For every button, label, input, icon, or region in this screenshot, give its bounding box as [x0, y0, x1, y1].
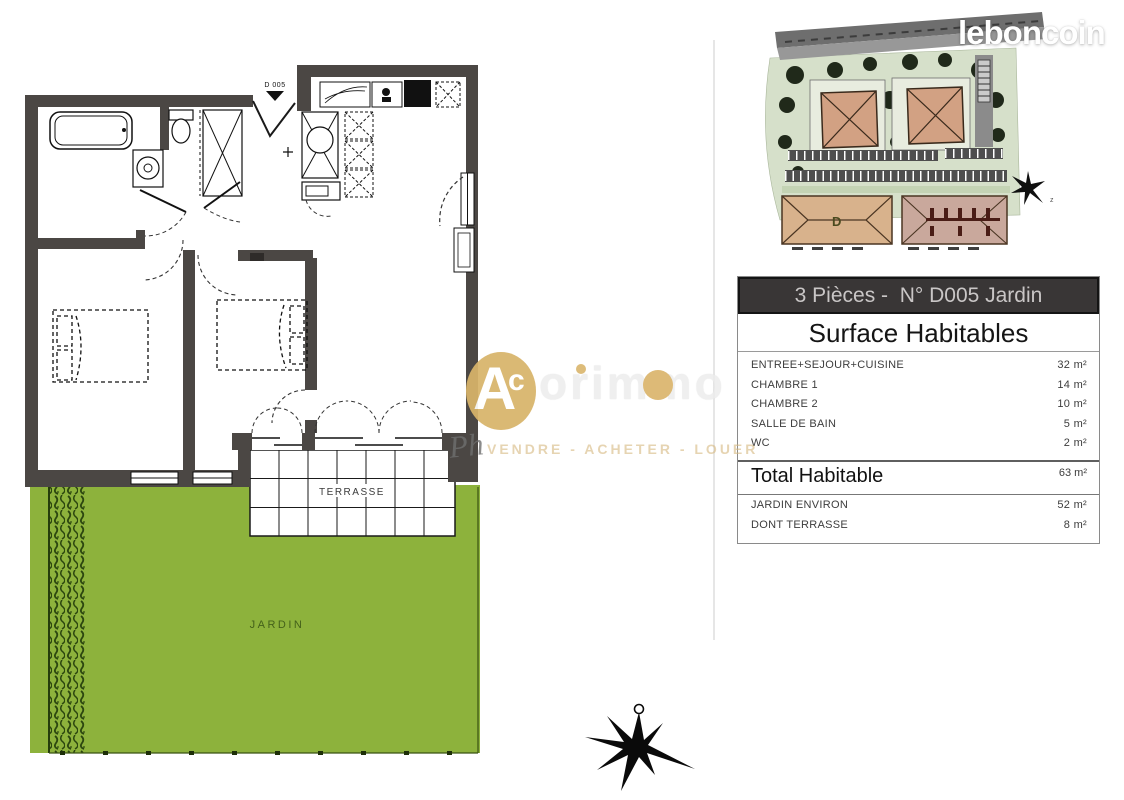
wardrobe — [200, 110, 242, 196]
toilet — [169, 110, 193, 143]
row-label: WC — [751, 437, 770, 457]
row-value: 2 m² — [1064, 437, 1087, 457]
row-value: 14 m² — [1057, 379, 1087, 399]
entry-door: D 005 — [253, 82, 295, 136]
leboncoin-logo: leboncoin — [958, 14, 1105, 52]
building-north-east — [907, 87, 964, 144]
surfaces-table: 3 Pièces - N° D005 Jardin Surface Habita… — [737, 276, 1100, 544]
extra-rows: JARDIN ENVIRON 52 m² DONT TERRASSE 8 m² — [738, 494, 1099, 543]
table-row: JARDIN ENVIRON 52 m² — [751, 499, 1087, 519]
row-value: 5 m² — [1064, 418, 1087, 438]
row-label: SALLE DE BAIN — [751, 418, 836, 438]
compass-rose — [585, 705, 695, 792]
bathroom-fixtures — [50, 110, 242, 236]
building-d: D — [782, 196, 892, 244]
tall-unit — [302, 112, 338, 178]
stairs — [975, 55, 993, 147]
row-value: 32 m² — [1057, 359, 1087, 379]
unit-title: 3 Pièces - N° D005 Jardin — [738, 277, 1099, 314]
washing-machine — [133, 150, 163, 187]
bed-2 — [217, 300, 307, 370]
door-arcs — [143, 240, 305, 423]
table-subtitle: Surface Habitables — [738, 314, 1099, 352]
parking-rows — [782, 148, 1010, 193]
garden-label: JARDIN — [250, 619, 305, 631]
table-row: CHAMBRE 2 10 m² — [751, 398, 1087, 418]
table-row: CHAMBRE 1 14 m² — [751, 379, 1087, 399]
total-label: Total Habitable — [751, 465, 883, 492]
row-value: 10 m² — [1057, 398, 1087, 418]
row-label: ENTREE+SEJOUR+CUISINE — [751, 359, 904, 379]
total-row: Total Habitable 63 m² — [738, 460, 1099, 494]
row-label: DONT TERRASSE — [751, 519, 848, 539]
entry-label: D 005 — [264, 82, 285, 89]
hedge — [48, 487, 86, 753]
entry-arrow-icon — [266, 91, 284, 101]
surface-rows: ENTREE+SEJOUR+CUISINE 32 m² CHAMBRE 1 14… — [738, 352, 1099, 460]
floor-plan: JARDIN TERRASSE — [0, 0, 740, 800]
terrace-row — [792, 247, 979, 250]
terrace-label: TERRASSE — [319, 487, 385, 498]
hob — [404, 80, 431, 107]
row-label: CHAMBRE 1 — [751, 379, 818, 399]
row-value: 52 m² — [1057, 499, 1087, 519]
table-row: ENTREE+SEJOUR+CUISINE 32 m² — [751, 359, 1087, 379]
total-value: 63 m² — [1059, 465, 1087, 492]
building-north-west — [821, 91, 878, 148]
row-label: CHAMBRE 2 — [751, 398, 818, 418]
page: JARDIN TERRASSE — [0, 0, 1124, 800]
beds — [53, 300, 307, 382]
building-d-label: D — [832, 214, 841, 229]
table-row: WC 2 m² — [751, 437, 1087, 457]
table-row: SALLE DE BAIN 5 m² — [751, 418, 1087, 438]
row-value: 8 m² — [1064, 519, 1087, 539]
table-row: DONT TERRASSE 8 m² — [751, 519, 1087, 539]
site-compass-label: z — [1050, 197, 1054, 204]
bathtub — [50, 112, 132, 149]
row-label: JARDIN ENVIRON — [751, 499, 848, 519]
building-south-east — [902, 196, 1007, 244]
